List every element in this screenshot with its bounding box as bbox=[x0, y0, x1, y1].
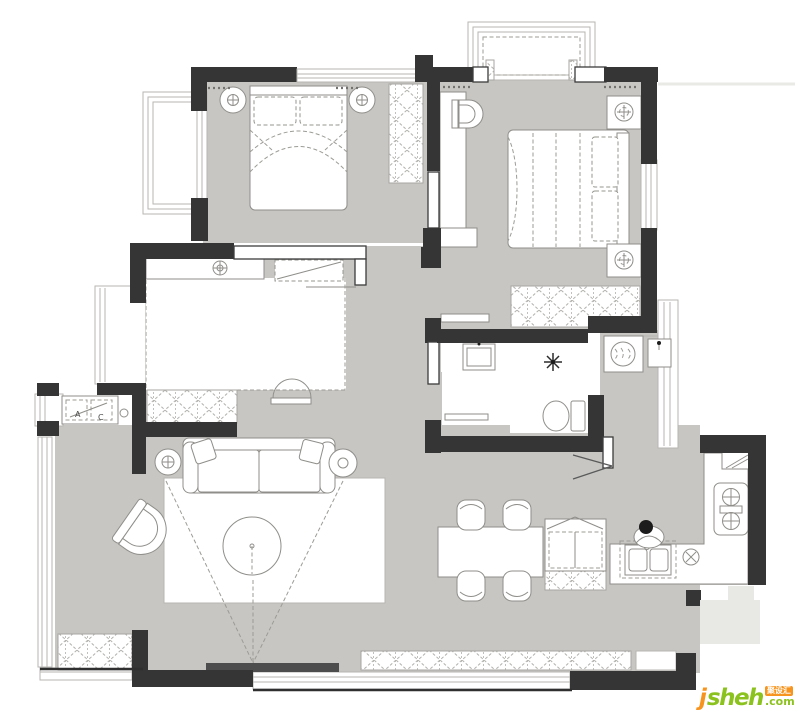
ghost-mark-1 bbox=[700, 600, 760, 644]
sofa-pillow-right bbox=[299, 439, 324, 464]
glazing-living-left bbox=[38, 437, 52, 667]
window-band-bottom bbox=[253, 672, 570, 689]
washing-machine bbox=[604, 336, 643, 372]
plan-layers: AC bbox=[35, 22, 795, 690]
ac-label-c: C bbox=[98, 413, 104, 422]
floorplan-svg: AC bbox=[0, 0, 800, 719]
wall-a-nw-v bbox=[191, 67, 207, 111]
ac-drain bbox=[120, 409, 128, 417]
bed-a-pillow-right bbox=[300, 97, 342, 125]
cabinet-living-left bbox=[58, 634, 132, 670]
wall-south-left bbox=[143, 670, 253, 687]
wall-study-pocket bbox=[355, 259, 366, 285]
wall-laundry-pier bbox=[589, 320, 603, 330]
glazing-corridor-east bbox=[658, 300, 678, 448]
pier-b-right bbox=[575, 67, 606, 82]
wall-a-west-lower bbox=[191, 198, 208, 241]
window-seat-cabinet bbox=[361, 651, 631, 670]
shower-symbol-center bbox=[551, 360, 555, 364]
bed-b-headboard bbox=[617, 133, 629, 245]
window-seat-gap bbox=[636, 651, 676, 670]
wall-study-white bbox=[234, 246, 366, 259]
stool-b-bar bbox=[452, 100, 458, 128]
wall-bath-south bbox=[425, 436, 604, 452]
wall-kitchen-east bbox=[748, 435, 766, 585]
cabinet-study bbox=[147, 390, 237, 423]
door-leaf-study bbox=[271, 398, 311, 404]
wall-bath-north bbox=[437, 329, 588, 343]
laundry-faucet bbox=[657, 341, 661, 345]
watermark-dotcom: .com bbox=[765, 696, 795, 708]
wall-a-east-pier bbox=[423, 228, 441, 247]
sideboard-lower bbox=[545, 570, 606, 590]
wall-a-east bbox=[427, 68, 440, 171]
bed-a-headboard bbox=[250, 86, 347, 95]
wall-b-east-upper bbox=[641, 67, 657, 164]
door-leaf-bathroom bbox=[428, 342, 439, 384]
shower-threshold bbox=[445, 414, 488, 420]
dining-table bbox=[438, 527, 543, 577]
wall-study-south bbox=[133, 422, 237, 437]
watermark-right-column: 聚设汇 .com bbox=[765, 686, 795, 708]
wall-ac-pier-bottom bbox=[37, 421, 59, 436]
ac-label-a: A bbox=[75, 410, 81, 419]
wall-study-nw-v bbox=[130, 243, 146, 303]
pier-b-left bbox=[473, 67, 488, 82]
desk-study bbox=[146, 258, 264, 279]
vanity-counter-b-step bbox=[440, 228, 477, 247]
toilet-bowl bbox=[543, 401, 569, 431]
wall-a-east-step bbox=[421, 247, 441, 268]
ac-platform bbox=[62, 396, 118, 424]
bed-a-pillow-left bbox=[254, 97, 296, 125]
floorplan-image: AC j sheh 聚设汇 .com bbox=[0, 0, 800, 719]
bed-b-pillow-bottom bbox=[592, 191, 618, 241]
door-sill-bedroom-b bbox=[441, 314, 489, 322]
wall-kitchen-notch bbox=[686, 590, 701, 606]
wall-ac-pier-top bbox=[37, 383, 59, 396]
ghost-mark-2 bbox=[728, 586, 754, 602]
wall-sw-vert bbox=[132, 630, 148, 687]
wall-south-right bbox=[570, 671, 696, 690]
bed-b-pillow-top bbox=[592, 137, 618, 187]
watermark-j: j bbox=[699, 689, 707, 708]
watermark-sheh: sheh bbox=[707, 689, 763, 708]
window-a-top bbox=[297, 69, 417, 82]
side-table-right bbox=[329, 449, 357, 477]
wall-ac-h bbox=[97, 383, 143, 395]
stool-b bbox=[459, 100, 483, 128]
window-bedroom-b-east bbox=[641, 160, 657, 230]
toilet-tank bbox=[571, 401, 585, 431]
door-leaf-bedroom-a bbox=[428, 172, 439, 228]
tatami-floor bbox=[146, 278, 346, 390]
wardrobe-bedroom-a bbox=[389, 84, 423, 183]
person-head bbox=[639, 520, 653, 534]
watermark: j sheh 聚设汇 .com bbox=[699, 686, 795, 708]
